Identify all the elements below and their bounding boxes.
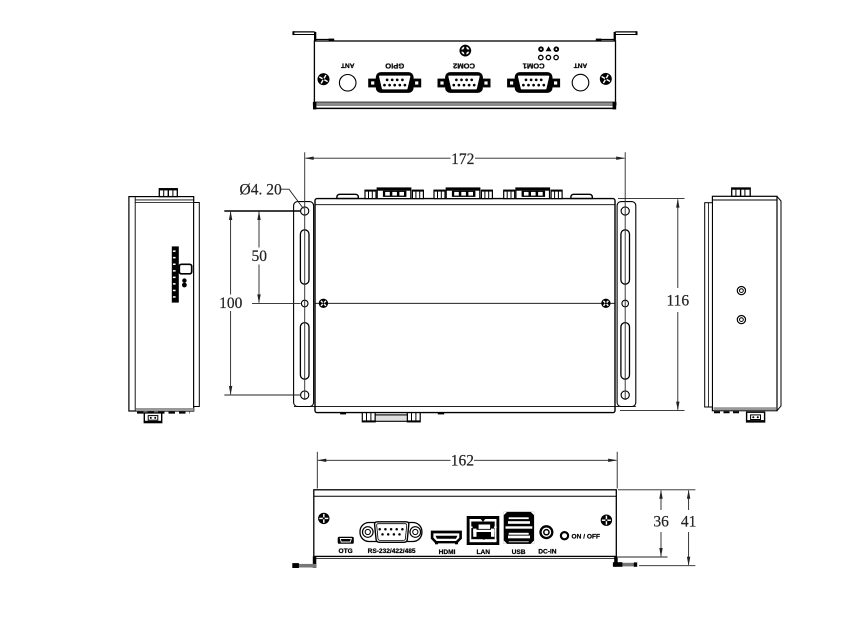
svg-text:50: 50	[251, 248, 267, 265]
svg-text:100: 100	[219, 295, 243, 312]
svg-text:ON / OFF: ON / OFF	[572, 533, 601, 540]
svg-text:GPIO: GPIO	[385, 61, 404, 70]
svg-text:DC-IN: DC-IN	[538, 549, 557, 556]
svg-text:172: 172	[451, 151, 474, 168]
svg-text:41: 41	[681, 513, 697, 530]
svg-text:Ø4. 20: Ø4. 20	[240, 181, 282, 198]
svg-text:116: 116	[666, 292, 689, 309]
svg-text:COM2: COM2	[453, 61, 475, 70]
svg-text:USB: USB	[512, 549, 526, 556]
svg-text:162: 162	[451, 453, 474, 470]
svg-text:HDMI: HDMI	[439, 549, 456, 556]
svg-text:RS-232/422/485: RS-232/422/485	[368, 548, 416, 555]
svg-text:ANT: ANT	[574, 62, 588, 69]
svg-text:LAN: LAN	[477, 549, 491, 556]
svg-text:COM1: COM1	[522, 61, 545, 70]
svg-text:OTG: OTG	[338, 548, 352, 555]
svg-text:ANT: ANT	[341, 62, 355, 69]
svg-text:36: 36	[653, 513, 669, 530]
